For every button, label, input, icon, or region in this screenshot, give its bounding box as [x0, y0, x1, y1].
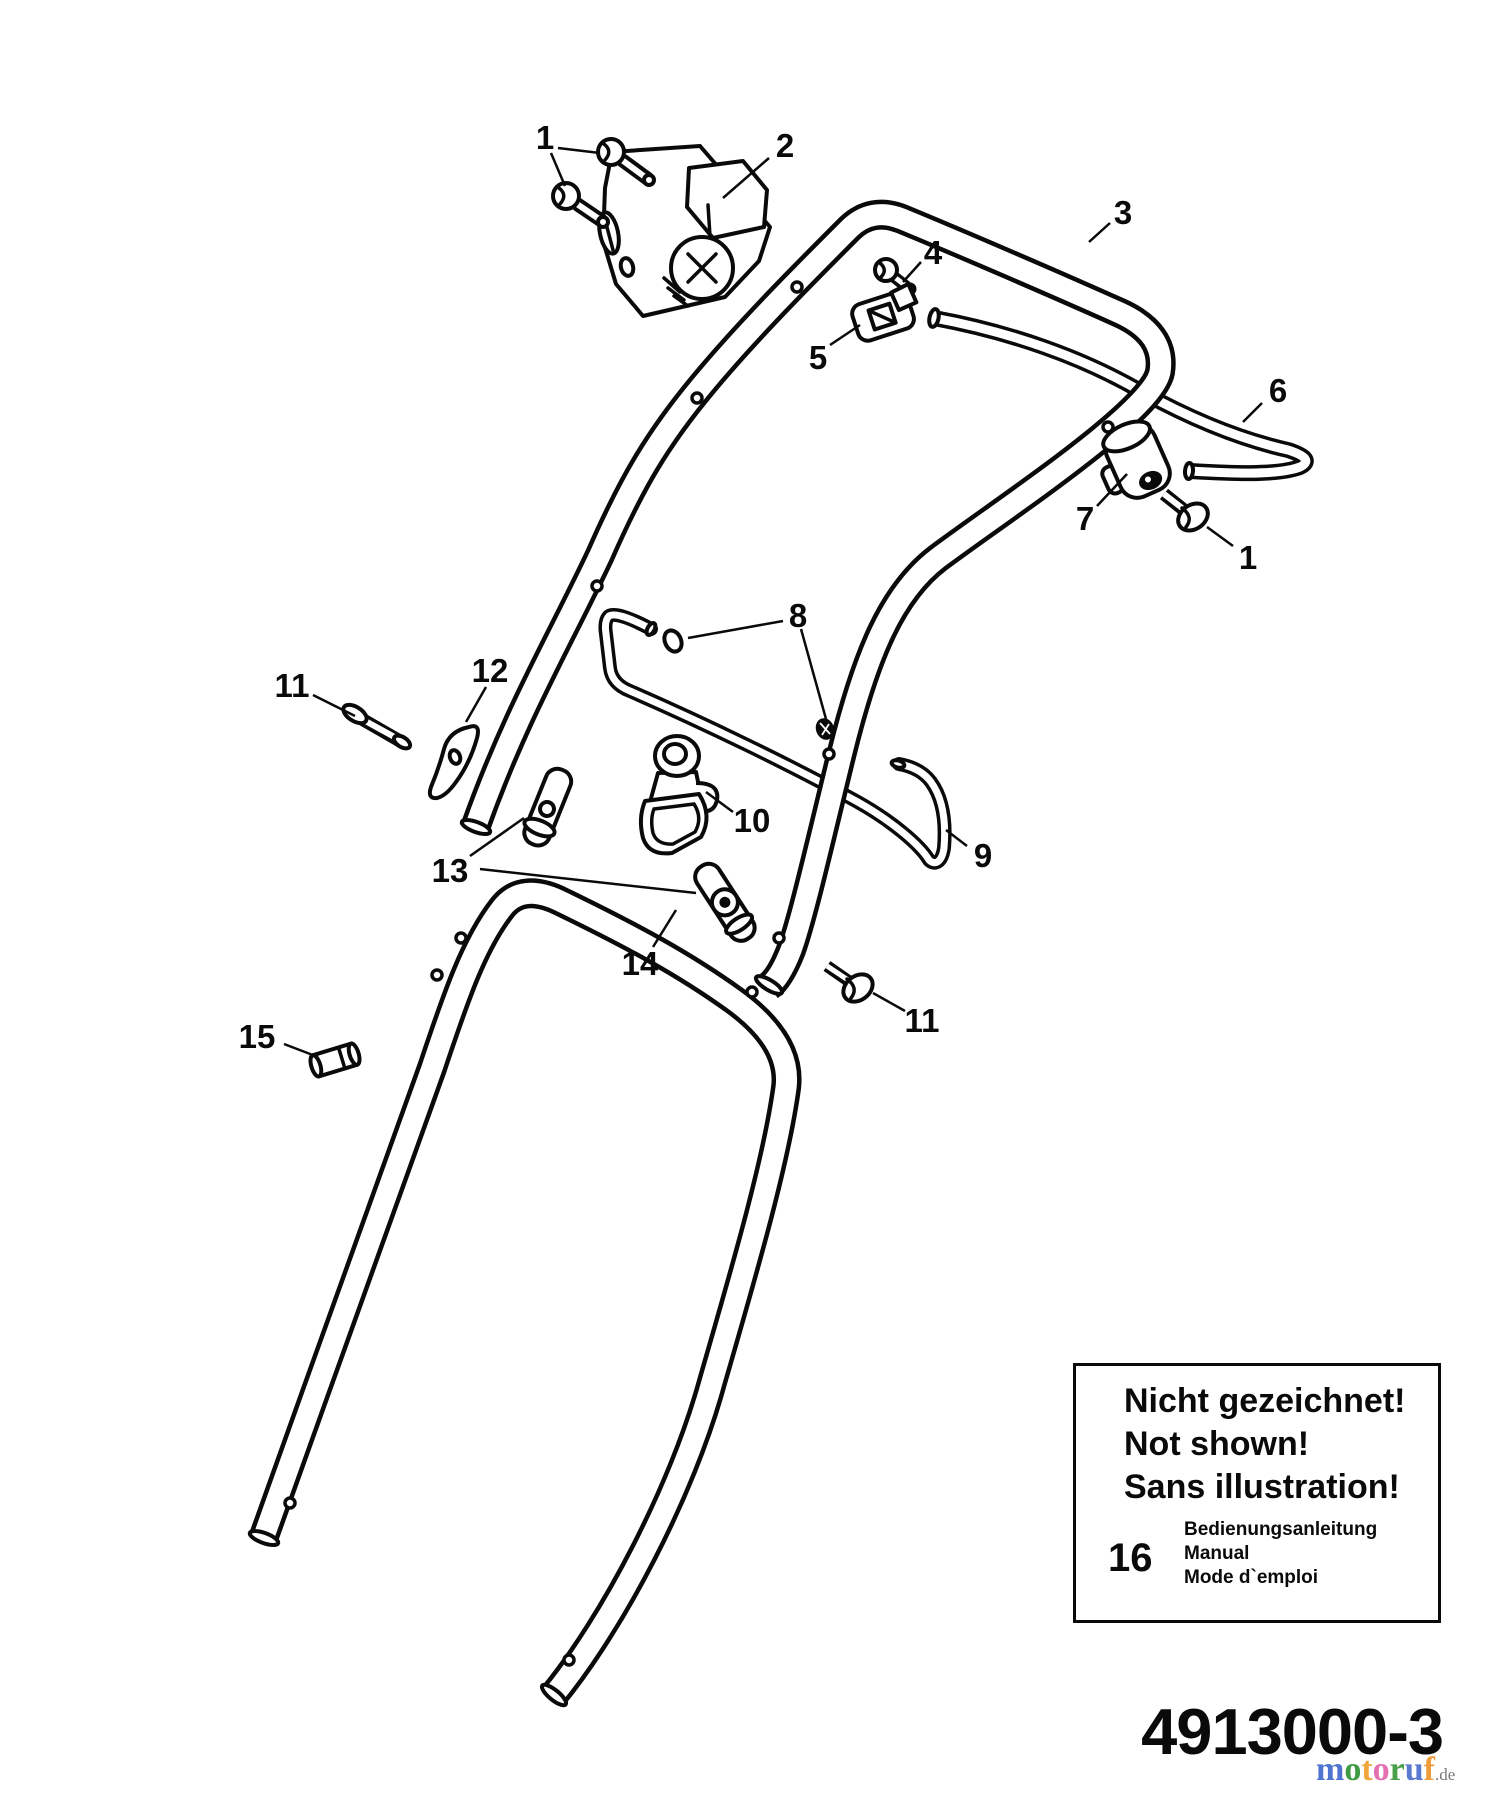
notice-item-row: 16 Bedienungsanleitung Manual Mode d`emp… [1076, 1518, 1438, 1590]
logo-letter: o [1344, 1751, 1361, 1788]
callout-label-7: 7 [1076, 500, 1094, 537]
callout-label-10: 10 [734, 802, 771, 839]
lower-handlebar-tube [248, 893, 786, 1708]
motoruf-logo-word: motoruf [1316, 1751, 1435, 1788]
logo-letter: t [1361, 1751, 1372, 1788]
logo-letter: r [1390, 1751, 1405, 1788]
callout-label-11-right: 11 [905, 1002, 940, 1039]
logo-letter: f [1424, 1751, 1435, 1788]
callout-label-2: 2 [776, 127, 794, 164]
wire-ring [661, 628, 685, 655]
callout-label-11-left: 11 [275, 667, 310, 704]
callout-label-9: 9 [974, 837, 992, 874]
callout-leader-4 [903, 262, 921, 282]
logo-letter: u [1405, 1751, 1424, 1788]
logo-letter: o [1373, 1751, 1390, 1788]
notice-item-line-en: Manual [1184, 1542, 1438, 1566]
hook-clip [430, 726, 478, 798]
callout-label-1-right: 1 [1239, 539, 1257, 576]
carriage-bolt [827, 966, 878, 1007]
notice-item-number: 16 [1108, 1536, 1153, 1581]
cable-guide-bracket [641, 736, 717, 853]
not-shown-notice: Nicht gezeichnet! Not shown! Sans illust… [1073, 1363, 1441, 1623]
callout-label-15: 15 [239, 1018, 276, 1055]
motoruf-logo[interactable]: motoruf.de [1316, 1752, 1455, 1793]
callout-leader-12 [466, 687, 486, 722]
callout-leader-6 [1243, 403, 1262, 422]
clevis-pin [340, 701, 412, 751]
notice-line-en: Not shown! [1124, 1423, 1438, 1466]
callout-label-8: 8 [789, 597, 807, 634]
callout-label-6: 6 [1269, 372, 1287, 409]
callout-label-13: 13 [432, 852, 469, 889]
callout-leader-15 [284, 1044, 318, 1057]
cable-clamp [848, 283, 923, 343]
switch-housing [596, 146, 770, 316]
callout-label-5: 5 [809, 339, 827, 376]
callout-layer: 123456718121110913141115 [239, 119, 1288, 1057]
wing-bolt-right [689, 858, 761, 946]
notice-item-line-de: Bedienungsanleitung [1184, 1518, 1438, 1542]
callout-leader-3 [1089, 223, 1110, 242]
motoruf-logo-suffix: .de [1435, 1765, 1455, 1784]
notice-line-fr: Sans illustration! [1124, 1466, 1438, 1509]
notice-line-de: Nicht gezeichnet! [1124, 1380, 1438, 1423]
spacer-sleeve [308, 1042, 361, 1077]
logo-letter: m [1316, 1751, 1344, 1788]
notice-item-line-fr: Mode d`emploi [1184, 1566, 1438, 1590]
callout-leader-8 [688, 621, 783, 638]
callout-leader-1-right [1207, 527, 1233, 546]
hex-screw-right [1164, 494, 1213, 536]
callout-leader-1-top [558, 148, 600, 153]
callout-label-12: 12 [472, 652, 509, 689]
parts-diagram-page: 123456718121110913141115 Nicht gezeichne… [0, 0, 1495, 1800]
callout-leader-8 [801, 629, 826, 719]
callout-label-4: 4 [924, 234, 943, 271]
callout-leader-11-right [873, 993, 905, 1011]
callout-leader-5 [830, 325, 860, 345]
callout-label-14: 14 [622, 945, 659, 982]
callout-label-3: 3 [1114, 194, 1132, 231]
callout-label-1-top: 1 [536, 119, 554, 156]
callout-leader-1-top [551, 153, 565, 186]
wing-bolt-left [518, 764, 578, 850]
